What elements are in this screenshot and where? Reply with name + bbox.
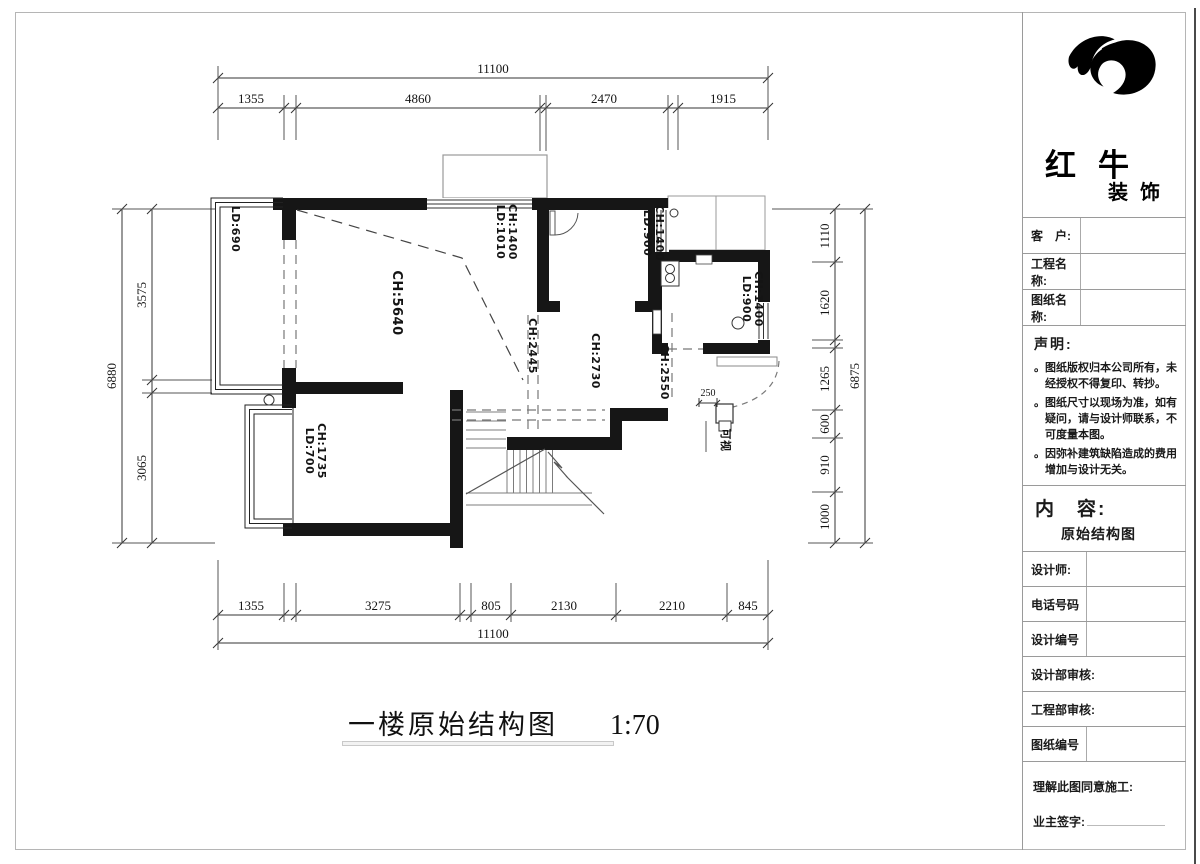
dim-right-seg: 1265 (817, 366, 832, 392)
interior-door (550, 211, 578, 235)
content-section: 内 容: 原始结构图 (1023, 486, 1186, 552)
room-label-balcony-window: LD:690 (229, 206, 242, 253)
dim-left-seg: 3065 (134, 455, 149, 481)
dim-bottom-seg: 3275 (365, 598, 391, 613)
statement-item: 。图纸尺寸以现场为准，如有疑问，请与设计师联系，不可度量本图。 (1034, 396, 1178, 444)
statement-item: 。因弥补建筑缺陷造成的费用增加与设计无关。 (1034, 447, 1178, 479)
dashed-openings (284, 240, 703, 435)
dim-left-seg: 3575 (134, 282, 149, 308)
design-dept-review-label: 设计部审核: (1023, 657, 1095, 691)
drawing-sheet: 11100 1355 4860 2470 1915 1355 3275 805 … (0, 0, 1200, 864)
dim-top-seg: 1355 (238, 91, 264, 106)
row-phone: 电话号码 (1023, 587, 1186, 622)
caption-underline (342, 741, 614, 746)
dim-top-seg: 1915 (710, 91, 736, 106)
window-label-lower: CH:1735 (315, 423, 328, 479)
walls (273, 198, 770, 548)
owner-signature-label: 业主签字: (1033, 815, 1085, 829)
room-label-living: CH:5640 (389, 270, 404, 335)
stair-break-line (466, 449, 604, 514)
row-drawing-number: 图纸编号 (1023, 727, 1186, 762)
room-label-entry: CH:2550 (658, 344, 671, 400)
window-label-kitchen-left: CH:1400 (653, 205, 666, 261)
row-design-dept-review: 设计部审核: (1023, 657, 1186, 692)
phone-label: 电话号码 (1023, 587, 1087, 621)
statement-heading: 声明: (1034, 334, 1178, 354)
eng-dept-review-label: 工程部审核: (1023, 692, 1095, 726)
entry-door (716, 357, 779, 431)
drawing-number-label: 图纸编号 (1023, 727, 1087, 761)
dim-right-seg: 1110 (817, 223, 832, 248)
row-eng-dept-review: 工程部审核: (1023, 692, 1186, 727)
designer-label: 设计师: (1023, 552, 1087, 586)
dim-left-total: 6880 (104, 363, 119, 389)
row-drawing-name: 图纸名称: (1023, 290, 1186, 326)
statement-item: 。图纸版权归本公司所有，未经授权不得复印、转抄。 (1034, 361, 1178, 393)
dim-right-seg: 1000 (817, 504, 832, 530)
footer-section: 理解此图同意施工: 业主签字: (1023, 762, 1186, 850)
content-value: 原始结构图 (1061, 524, 1136, 544)
customer-label: 客 户: (1023, 218, 1081, 253)
dim-chain-top (213, 66, 773, 151)
logo-section: 红牛 装饰 (1023, 12, 1186, 218)
brand-subname: 装饰 (1108, 176, 1172, 205)
balcony-window-frame (211, 198, 283, 394)
stove (661, 261, 679, 286)
room-label-hall: CH:2445 (526, 318, 539, 374)
dim-top-total: 11100 (477, 61, 509, 76)
dim-bottom-seg: 2130 (551, 598, 577, 613)
dim-bottom-seg: 1355 (238, 598, 264, 613)
design-number-label: 设计编号 (1023, 622, 1087, 656)
dim-bottom-seg: 805 (481, 598, 501, 613)
door-offset-label: 250 (701, 388, 716, 399)
window-label-kitchen-right: CH:1400 (752, 271, 765, 327)
dim-bottom-seg: 845 (738, 598, 758, 613)
dim-right-total: 6875 (847, 363, 862, 389)
dashed-ceiling-line (297, 210, 523, 380)
dim-top-seg: 4860 (405, 91, 431, 106)
content-label: 内 容: (1035, 494, 1106, 521)
window-label-top: CH:1400 (506, 204, 519, 260)
row-customer: 客 户: (1023, 218, 1186, 254)
drawing-caption: 一楼原始结构图1:70 (348, 703, 660, 742)
room-label-bedroom: CH:2730 (589, 333, 602, 389)
redbull-logo-icon (1047, 28, 1165, 128)
construction-agreement-note: 理解此图同意施工: (1033, 778, 1176, 795)
owner-signature: 业主签字: (1033, 813, 1176, 830)
sheet-right-edge (1194, 8, 1196, 864)
row-design-number: 设计编号 (1023, 622, 1186, 657)
window-label-kitchen-right: LD:900 (740, 276, 753, 323)
terrace-outline (668, 196, 765, 250)
window-label-lower: LD:700 (303, 428, 316, 475)
dim-top-seg: 2470 (591, 91, 617, 106)
statement-section: 声明: 。图纸版权归本公司所有，未经授权不得复印、转抄。 。图纸尺寸以现场为准，… (1023, 326, 1186, 486)
drawing-scale: 1:70 (610, 710, 660, 741)
drawing-title: 一楼原始结构图 (348, 710, 558, 740)
dim-chain-left (112, 204, 215, 548)
row-designer: 设计师: (1023, 552, 1186, 587)
dim-right-seg: 600 (817, 414, 832, 434)
intercom-label: 可视 (719, 429, 733, 452)
window-label-top: LD:1010 (494, 205, 507, 260)
flue-box (443, 155, 547, 198)
dim-right-seg: 910 (817, 455, 832, 475)
drawing-name-label: 图纸名称: (1023, 290, 1081, 325)
dim-bottom-total: 11100 (477, 626, 509, 641)
titleblock: 红牛 装饰 客 户: 工程名称: 图纸名称: 声明: 。图纸版权归本公司所有，未… (1022, 12, 1186, 850)
dim-right-seg: 1620 (817, 290, 832, 316)
project-name-label: 工程名称: (1023, 254, 1081, 289)
window-label-kitchen-left: LD:900 (641, 210, 654, 257)
signature-line (1087, 814, 1165, 826)
lower-window-bay (245, 405, 293, 528)
row-project-name: 工程名称: (1023, 254, 1186, 290)
dim-bottom-seg: 2210 (659, 598, 685, 613)
